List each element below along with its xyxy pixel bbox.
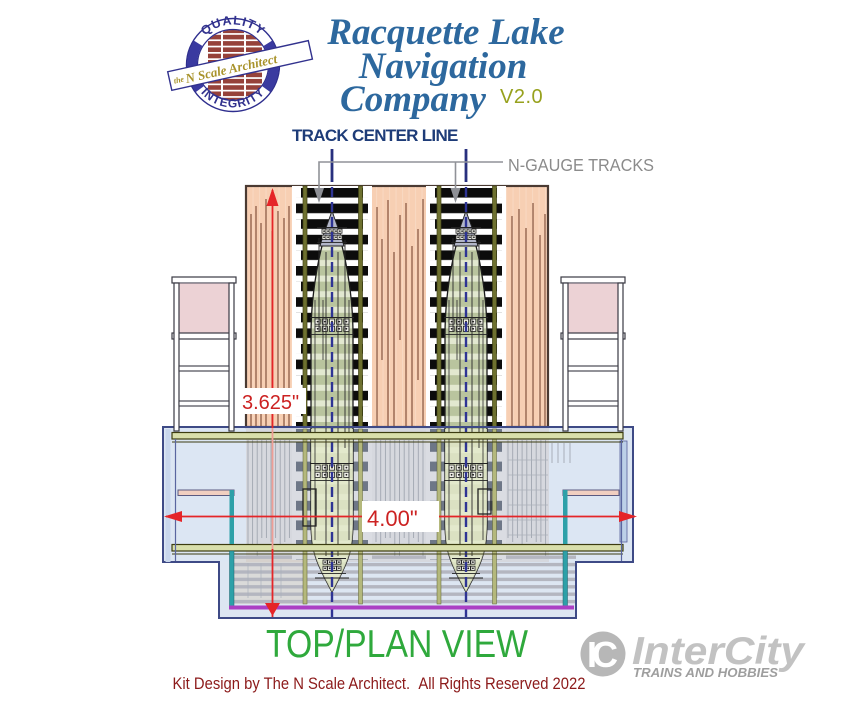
svg-text:N-GAUGE TRACKS: N-GAUGE TRACKS xyxy=(508,155,654,175)
svg-text:V2.0: V2.0 xyxy=(500,86,543,108)
svg-text:Kit Design by The N Scale Arch: Kit Design by The N Scale Architect. All… xyxy=(173,675,586,693)
svg-text:4.00": 4.00" xyxy=(367,506,418,531)
svg-text:TOP/PLAN VIEW: TOP/PLAN VIEW xyxy=(266,623,528,666)
svg-text:3.625": 3.625" xyxy=(242,392,299,414)
svg-text:TRAINS AND HOBBIES: TRAINS AND HOBBIES xyxy=(633,665,778,680)
svg-text:TRACK CENTER LINE: TRACK CENTER LINE xyxy=(292,126,458,145)
svg-text:Company: Company xyxy=(340,79,487,120)
